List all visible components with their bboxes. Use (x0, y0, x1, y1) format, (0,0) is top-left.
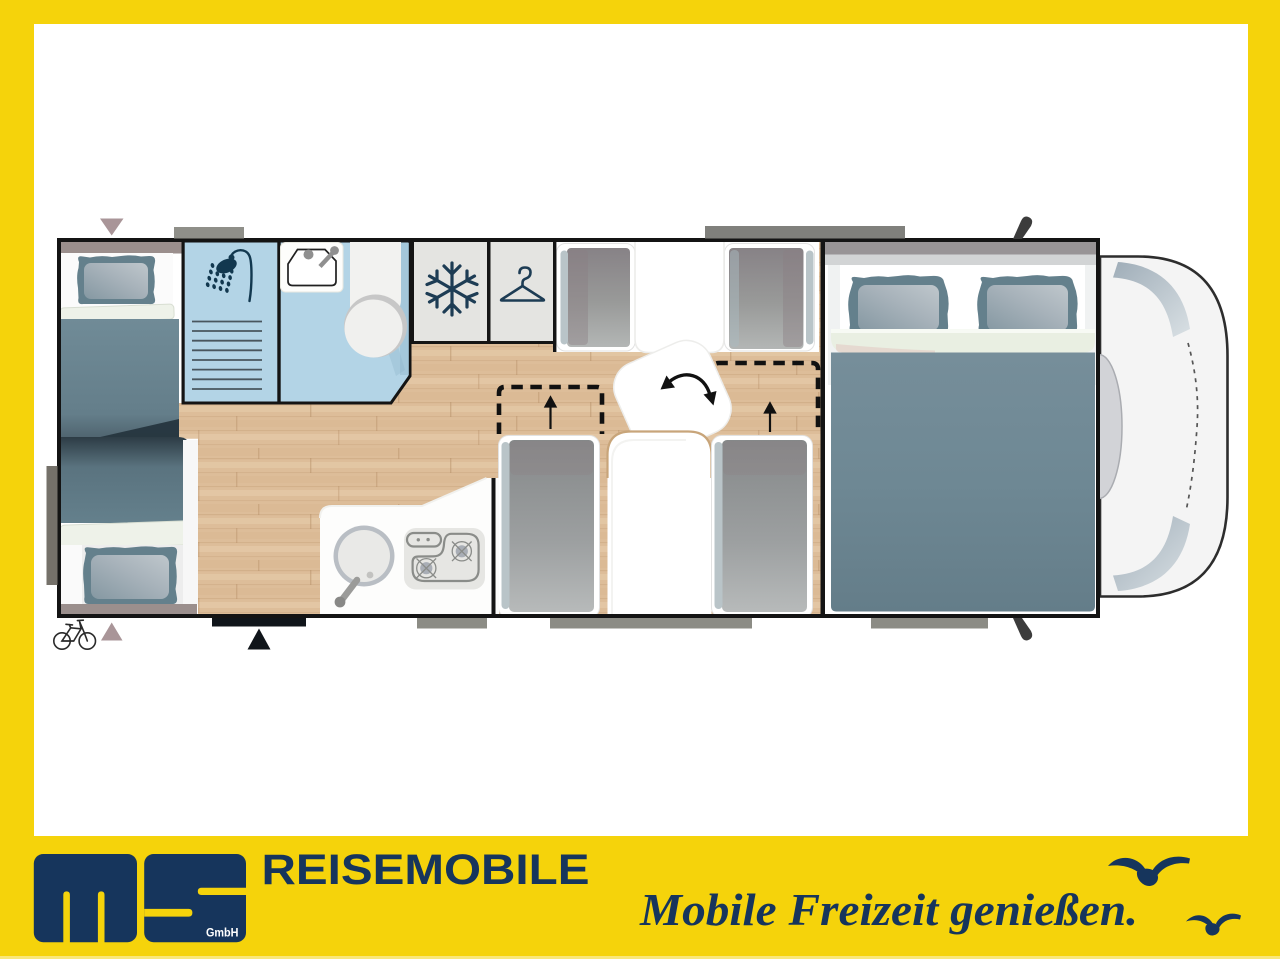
svg-text:Mobile Freizeit genießen.: Mobile Freizeit genießen. (639, 884, 1138, 935)
svg-text:REISEMOBILE: REISEMOBILE (262, 847, 590, 894)
svg-text:GmbH: GmbH (206, 926, 239, 940)
